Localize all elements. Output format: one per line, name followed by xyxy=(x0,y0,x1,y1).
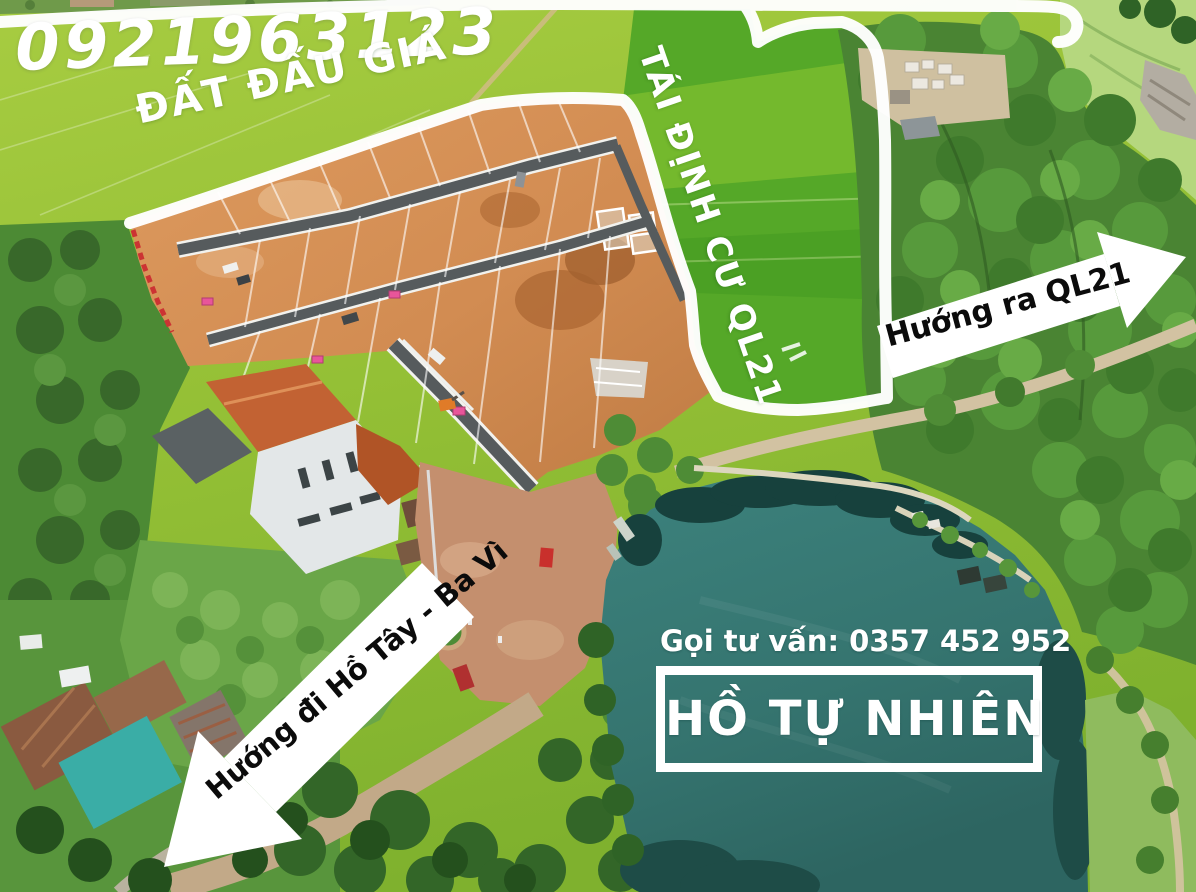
red-car xyxy=(539,548,554,568)
aerial-photo: 0921963123 ĐẤT ĐẤU GIÁ TÁI ĐỊNH CƯ QL21 … xyxy=(0,0,1196,892)
consultation-label: Gọi tư vấn: 0357 452 952 xyxy=(660,624,1071,658)
lake-label-box: HỒ TỰ NHIÊN xyxy=(656,666,1042,772)
